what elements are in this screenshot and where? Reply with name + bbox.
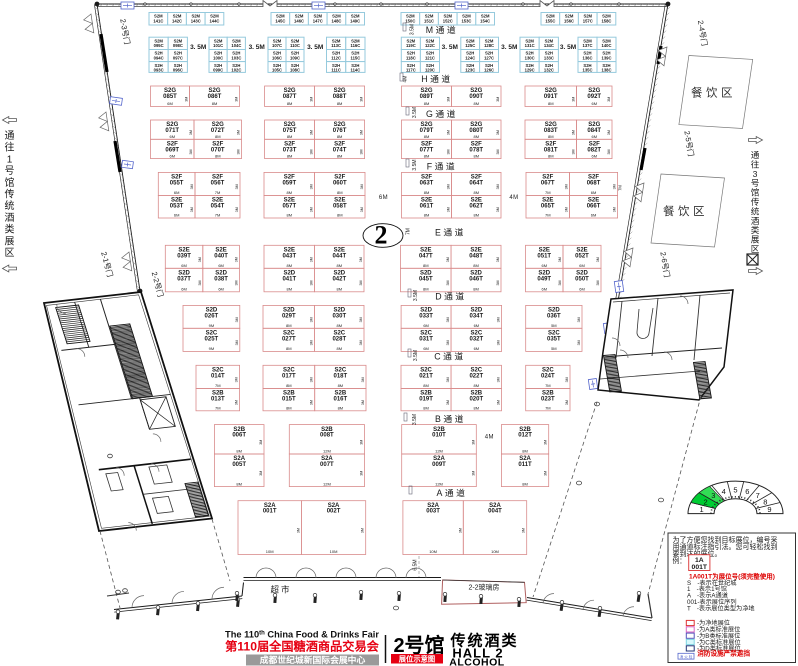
svg-text:10M: 10M bbox=[266, 549, 274, 554]
svg-text:3M: 3M bbox=[310, 317, 314, 322]
svg-text:143C: 143C bbox=[191, 18, 201, 23]
svg-text:6M: 6M bbox=[474, 323, 480, 328]
svg-text:067T: 067T bbox=[541, 180, 555, 186]
svg-text:3M: 3M bbox=[237, 149, 241, 154]
svg-text:8M: 8M bbox=[286, 383, 292, 388]
svg-text:3M: 3M bbox=[310, 207, 314, 212]
svg-text:014T: 014T bbox=[211, 373, 225, 379]
svg-text:6M: 6M bbox=[474, 346, 480, 351]
svg-text:006T: 006T bbox=[232, 433, 246, 439]
svg-text:8M: 8M bbox=[424, 101, 430, 106]
svg-text:8M: 8M bbox=[337, 190, 343, 195]
svg-text:3M: 3M bbox=[310, 184, 314, 189]
svg-text:3M: 3M bbox=[185, 97, 189, 102]
svg-text:3M: 3M bbox=[190, 207, 194, 212]
svg-text:8M: 8M bbox=[286, 346, 292, 351]
svg-text:3M: 3M bbox=[360, 184, 364, 189]
svg-text:3M: 3M bbox=[497, 400, 501, 405]
svg-text:088T: 088T bbox=[333, 94, 347, 100]
svg-text:6M: 6M bbox=[423, 323, 429, 328]
svg-text:8M: 8M bbox=[423, 287, 429, 292]
svg-text:092T: 092T bbox=[587, 94, 601, 100]
svg-text:029T: 029T bbox=[282, 313, 296, 319]
svg-text:3M: 3M bbox=[496, 257, 500, 262]
svg-text:1A: 1A bbox=[695, 557, 704, 564]
svg-text:餐饮区: 餐饮区 bbox=[691, 86, 736, 100]
svg-text:5M: 5M bbox=[551, 323, 557, 328]
svg-text:024T: 024T bbox=[541, 373, 555, 379]
svg-text:区: 区 bbox=[751, 244, 760, 254]
svg-text:093C: 093C bbox=[154, 67, 164, 72]
svg-text:3. 5M: 3. 5M bbox=[442, 44, 458, 51]
svg-text:3M: 3M bbox=[447, 184, 451, 189]
svg-text:134C: 134C bbox=[544, 43, 554, 48]
svg-text:12M: 12M bbox=[435, 449, 443, 454]
svg-text:145C: 145C bbox=[275, 18, 285, 23]
svg-text:3M: 3M bbox=[522, 528, 526, 533]
svg-text:3M: 3M bbox=[497, 377, 501, 382]
svg-text:6M: 6M bbox=[591, 101, 597, 106]
svg-text:5M: 5M bbox=[551, 346, 557, 351]
svg-text:3.5M: 3.5M bbox=[412, 414, 418, 425]
svg-text:3M: 3M bbox=[310, 281, 314, 286]
svg-text:013T: 013T bbox=[211, 397, 225, 403]
svg-text:3M: 3M bbox=[447, 97, 451, 102]
svg-text:3M: 3M bbox=[237, 130, 241, 135]
svg-text:3M: 3M bbox=[471, 440, 475, 445]
svg-text:137C: 137C bbox=[582, 43, 592, 48]
svg-text:051T: 051T bbox=[537, 253, 551, 259]
svg-text:7M: 7M bbox=[618, 185, 623, 191]
svg-text:6M: 6M bbox=[181, 263, 187, 268]
svg-text:8M: 8M bbox=[548, 101, 554, 106]
svg-text:7M: 7M bbox=[545, 406, 551, 411]
svg-text:8M: 8M bbox=[424, 134, 430, 139]
svg-text:8M: 8M bbox=[474, 406, 480, 411]
svg-text:为了方便您找到目标展位，编号采: 为了方便您找到目标展位，编号采 bbox=[673, 535, 778, 544]
svg-text:140C: 140C bbox=[601, 43, 611, 48]
svg-text:成都世纪城新国际会展中心: 成都世纪城新国际会展中心 bbox=[260, 654, 366, 665]
svg-text:3. 5M: 3. 5M bbox=[307, 44, 323, 51]
svg-text:042T: 042T bbox=[332, 276, 346, 282]
svg-text:3M: 3M bbox=[544, 440, 548, 445]
svg-text:020T: 020T bbox=[469, 397, 483, 403]
svg-text:3M: 3M bbox=[360, 97, 364, 102]
svg-text:001T: 001T bbox=[692, 564, 708, 571]
svg-text:统: 统 bbox=[751, 205, 760, 216]
svg-text:2: 2 bbox=[704, 497, 708, 506]
svg-text:8M: 8M bbox=[287, 153, 293, 158]
svg-text:6M: 6M bbox=[167, 101, 173, 106]
svg-text:3M: 3M bbox=[558, 281, 562, 286]
svg-text:3M: 3M bbox=[607, 130, 611, 135]
svg-text:8M: 8M bbox=[423, 383, 429, 388]
svg-text:8M: 8M bbox=[337, 346, 343, 351]
svg-text:3M: 3M bbox=[565, 377, 569, 382]
svg-text:统: 统 bbox=[5, 199, 15, 212]
svg-text:3M: 3M bbox=[572, 97, 576, 102]
svg-text:3M: 3M bbox=[310, 377, 314, 382]
svg-text:152C: 152C bbox=[443, 18, 453, 23]
svg-text:032T: 032T bbox=[470, 336, 484, 342]
svg-text:3M: 3M bbox=[496, 184, 500, 189]
svg-text:往: 往 bbox=[751, 158, 760, 169]
svg-text:6M: 6M bbox=[218, 287, 224, 292]
svg-text:馆: 馆 bbox=[751, 187, 760, 198]
svg-text:3M: 3M bbox=[190, 184, 194, 189]
svg-text:001T: 001T bbox=[263, 509, 277, 515]
svg-text:115C: 115C bbox=[350, 55, 360, 60]
svg-text:酒: 酒 bbox=[5, 212, 15, 224]
svg-text:105C: 105C bbox=[272, 67, 282, 72]
svg-text:056T: 056T bbox=[211, 180, 225, 186]
svg-text:131C: 131C bbox=[525, 43, 535, 48]
svg-text:8M: 8M bbox=[522, 449, 528, 454]
svg-text:149C: 149C bbox=[350, 18, 360, 23]
svg-text:3M: 3M bbox=[577, 317, 581, 322]
svg-text:6M: 6M bbox=[591, 190, 597, 195]
svg-text:3M: 3M bbox=[310, 130, 314, 135]
svg-text:101C: 101C bbox=[213, 43, 223, 48]
svg-text:106C: 106C bbox=[272, 55, 282, 60]
svg-text:8M: 8M bbox=[212, 101, 218, 106]
svg-text:3M: 3M bbox=[235, 317, 239, 322]
svg-text:3: 3 bbox=[711, 491, 715, 500]
svg-text:6.5M: 6.5M bbox=[413, 559, 419, 570]
svg-text:054T: 054T bbox=[211, 203, 225, 209]
svg-text:3M: 3M bbox=[446, 377, 450, 382]
svg-text:8M: 8M bbox=[287, 213, 293, 218]
svg-text:3M: 3M bbox=[446, 257, 450, 262]
svg-text:传: 传 bbox=[5, 189, 15, 201]
svg-text:类: 类 bbox=[5, 223, 15, 236]
svg-text:8M: 8M bbox=[337, 263, 343, 268]
svg-text:3M: 3M bbox=[198, 281, 202, 286]
svg-text:3M: 3M bbox=[596, 281, 600, 286]
svg-text:155C: 155C bbox=[545, 18, 555, 23]
svg-text:3M: 3M bbox=[446, 281, 450, 286]
svg-text:117C: 117C bbox=[406, 67, 416, 72]
svg-text:12M: 12M bbox=[323, 481, 331, 486]
svg-text:9M: 9M bbox=[209, 346, 215, 351]
svg-text:048T: 048T bbox=[469, 253, 483, 259]
svg-text:1: 1 bbox=[7, 154, 13, 165]
svg-text:6M: 6M bbox=[181, 287, 187, 292]
svg-text:H通道: H通道 bbox=[421, 73, 452, 84]
svg-text:8M: 8M bbox=[424, 213, 430, 218]
svg-text:传: 传 bbox=[751, 196, 760, 207]
svg-text:064T: 064T bbox=[469, 180, 483, 186]
svg-text:107C: 107C bbox=[272, 43, 282, 48]
svg-text:025T: 025T bbox=[205, 336, 219, 342]
svg-text:8M: 8M bbox=[522, 481, 528, 486]
svg-text:6M: 6M bbox=[591, 153, 597, 158]
svg-text:059T: 059T bbox=[282, 180, 296, 186]
svg-text:3M: 3M bbox=[496, 207, 500, 212]
svg-text:8M: 8M bbox=[474, 383, 480, 388]
svg-text:057T: 057T bbox=[282, 203, 296, 209]
svg-text:097C: 097C bbox=[173, 55, 183, 60]
svg-text:7M: 7M bbox=[215, 383, 221, 388]
svg-text:展位示意图: 展位示意图 bbox=[398, 655, 435, 664]
svg-text:125C: 125C bbox=[465, 43, 475, 48]
svg-text:022T: 022T bbox=[469, 373, 483, 379]
svg-text:B通道: B通道 bbox=[435, 413, 466, 424]
svg-text:062T: 062T bbox=[469, 203, 483, 209]
svg-text:124C: 124C bbox=[465, 55, 475, 60]
svg-text:3M: 3M bbox=[471, 471, 475, 476]
svg-text:8M: 8M bbox=[337, 287, 343, 292]
svg-text:3M: 3M bbox=[446, 340, 450, 345]
svg-text:用通道标注指引法。您可轻松找到: 用通道标注指引法。您可轻松找到 bbox=[673, 542, 778, 551]
svg-text:10M: 10M bbox=[491, 549, 499, 554]
svg-text:3M: 3M bbox=[189, 149, 193, 154]
svg-text:119C: 119C bbox=[406, 43, 416, 48]
svg-text:5: 5 bbox=[733, 486, 737, 495]
svg-text:044T: 044T bbox=[332, 253, 346, 259]
svg-text:8M: 8M bbox=[473, 153, 479, 158]
svg-text:041T: 041T bbox=[282, 276, 296, 282]
svg-text:2: 2 bbox=[375, 221, 388, 250]
svg-text:8M: 8M bbox=[473, 190, 479, 195]
svg-text:100C: 100C bbox=[213, 55, 223, 60]
svg-text:4: 4 bbox=[722, 487, 726, 496]
svg-text:8M: 8M bbox=[473, 287, 479, 292]
svg-text:3M: 3M bbox=[235, 377, 239, 382]
svg-text:8M: 8M bbox=[424, 153, 430, 158]
svg-text:6M: 6M bbox=[541, 287, 547, 292]
svg-text:3M: 3M bbox=[565, 184, 569, 189]
svg-text:147C: 147C bbox=[313, 18, 323, 23]
svg-text:156C: 156C bbox=[564, 18, 574, 23]
svg-text:3. 5M: 3. 5M bbox=[560, 44, 576, 51]
svg-text:例：: 例： bbox=[673, 556, 687, 565]
svg-text:094C: 094C bbox=[154, 55, 164, 60]
svg-text:8M: 8M bbox=[423, 406, 429, 411]
svg-text:052T: 052T bbox=[575, 253, 589, 259]
svg-text:128C: 128C bbox=[484, 43, 494, 48]
svg-text:3M: 3M bbox=[565, 207, 569, 212]
svg-text:3M: 3M bbox=[496, 130, 500, 135]
svg-text:3M: 3M bbox=[572, 130, 576, 135]
svg-text:3M: 3M bbox=[259, 440, 263, 445]
svg-text:8M: 8M bbox=[473, 263, 479, 268]
svg-text:007T: 007T bbox=[320, 462, 334, 468]
svg-text:126C: 126C bbox=[484, 67, 494, 72]
svg-text:015T: 015T bbox=[282, 397, 296, 403]
svg-text:113C: 113C bbox=[331, 43, 341, 48]
svg-text:138C: 138C bbox=[601, 67, 611, 72]
svg-text:065T: 065T bbox=[541, 203, 555, 209]
svg-text:003T: 003T bbox=[426, 509, 440, 515]
svg-text:066T: 066T bbox=[587, 203, 601, 209]
svg-text:089T: 089T bbox=[420, 94, 434, 100]
svg-text:023T: 023T bbox=[541, 397, 555, 403]
svg-text:展: 展 bbox=[5, 235, 15, 247]
svg-text:8M: 8M bbox=[286, 406, 292, 411]
svg-text:3M: 3M bbox=[446, 317, 450, 322]
svg-text:037T: 037T bbox=[177, 276, 191, 282]
svg-text:6M: 6M bbox=[379, 195, 388, 201]
svg-text:3M: 3M bbox=[235, 340, 239, 345]
svg-text:130C: 130C bbox=[525, 55, 535, 60]
svg-text:103C: 103C bbox=[231, 55, 241, 60]
svg-text:122C: 122C bbox=[425, 43, 435, 48]
svg-text:098C: 098C bbox=[173, 43, 183, 48]
svg-text:8M: 8M bbox=[424, 190, 430, 195]
svg-text:超市: 超市 bbox=[270, 585, 291, 595]
svg-text:3M: 3M bbox=[296, 528, 300, 533]
svg-text:009T: 009T bbox=[432, 462, 446, 468]
svg-text:123C: 123C bbox=[465, 67, 475, 72]
svg-text:3M: 3M bbox=[360, 130, 364, 135]
svg-text:008T: 008T bbox=[320, 433, 334, 439]
svg-text:7M: 7M bbox=[215, 406, 221, 411]
svg-text:136C: 136C bbox=[582, 55, 592, 60]
svg-text:060T: 060T bbox=[333, 180, 347, 186]
svg-text:111C: 111C bbox=[331, 67, 341, 72]
svg-text:055T: 055T bbox=[170, 180, 184, 186]
svg-text:034T: 034T bbox=[470, 313, 484, 319]
svg-text:8M: 8M bbox=[236, 449, 242, 454]
svg-text:E通道: E通道 bbox=[435, 227, 466, 238]
svg-text:3M: 3M bbox=[360, 207, 364, 212]
svg-text:7M: 7M bbox=[545, 383, 551, 388]
svg-text:G通道: G通道 bbox=[426, 108, 458, 119]
svg-text:6: 6 bbox=[745, 487, 749, 496]
svg-text:M通道: M通道 bbox=[426, 24, 458, 35]
svg-text:通: 通 bbox=[5, 130, 15, 142]
svg-text:6M: 6M bbox=[579, 263, 585, 268]
svg-text:026T: 026T bbox=[205, 313, 219, 319]
svg-text:002T: 002T bbox=[327, 509, 341, 515]
svg-text:3M: 3M bbox=[310, 400, 314, 405]
svg-text:061T: 061T bbox=[420, 203, 434, 209]
svg-text:1: 1 bbox=[699, 505, 703, 514]
svg-text:033T: 033T bbox=[419, 313, 433, 319]
svg-text:ALCOHOL: ALCOHOL bbox=[449, 657, 504, 666]
svg-text:3M: 3M bbox=[497, 340, 501, 345]
svg-text:096C: 096C bbox=[173, 67, 183, 72]
svg-text:8M: 8M bbox=[215, 153, 221, 158]
svg-text:102C: 102C bbox=[231, 67, 241, 72]
svg-text:120C: 120C bbox=[425, 67, 435, 72]
svg-text:3M: 3M bbox=[360, 440, 364, 445]
svg-text:6M: 6M bbox=[423, 346, 429, 351]
svg-text:043T: 043T bbox=[282, 253, 296, 259]
svg-text:7: 7 bbox=[756, 491, 760, 500]
svg-text:039T: 039T bbox=[177, 253, 191, 259]
svg-text:T -表示展位类型为净地: T -表示展位类型为净地 bbox=[687, 604, 755, 612]
svg-text:030T: 030T bbox=[332, 313, 346, 319]
svg-text:3M: 3M bbox=[359, 281, 363, 286]
svg-text:3M: 3M bbox=[496, 149, 500, 154]
svg-text:058T: 058T bbox=[333, 203, 347, 209]
svg-text:3.5M: 3.5M bbox=[412, 159, 418, 170]
svg-text:A通道: A通道 bbox=[437, 487, 468, 498]
svg-text:8M: 8M bbox=[337, 134, 343, 139]
svg-text:158C: 158C bbox=[601, 18, 611, 23]
svg-text:3M: 3M bbox=[496, 97, 500, 102]
svg-text:3. 5M: 3. 5M bbox=[190, 44, 206, 51]
svg-text:3.5M: 3.5M bbox=[413, 350, 419, 361]
svg-text:3M: 3M bbox=[596, 257, 600, 262]
svg-text:8M: 8M bbox=[423, 263, 429, 268]
svg-text:3M: 3M bbox=[198, 257, 202, 262]
svg-text:7M: 7M bbox=[215, 190, 221, 195]
svg-text:027T: 027T bbox=[282, 336, 296, 342]
svg-text:068T: 068T bbox=[587, 180, 601, 186]
svg-text:6M: 6M bbox=[174, 213, 180, 218]
svg-text:153C: 153C bbox=[461, 18, 471, 23]
svg-text:141C: 141C bbox=[153, 18, 163, 23]
svg-text:038T: 038T bbox=[214, 276, 228, 282]
svg-text:3M: 3M bbox=[572, 149, 576, 154]
svg-text:3.5M: 3.5M bbox=[410, 24, 416, 35]
svg-text:8M: 8M bbox=[548, 134, 554, 139]
svg-text:3. 5M: 3. 5M bbox=[249, 44, 265, 51]
svg-text:10M: 10M bbox=[330, 549, 338, 554]
svg-text:2号馆: 2号馆 bbox=[393, 633, 444, 657]
svg-text:151C: 151C bbox=[424, 18, 434, 23]
svg-text:6M: 6M bbox=[591, 213, 597, 218]
svg-text:150C: 150C bbox=[405, 18, 415, 23]
svg-text:031T: 031T bbox=[419, 336, 433, 342]
svg-text:095C: 095C bbox=[154, 43, 164, 48]
svg-text:116C: 116C bbox=[350, 43, 360, 48]
svg-text:3M: 3M bbox=[310, 97, 314, 102]
svg-text:086T: 086T bbox=[208, 94, 222, 100]
svg-text:9: 9 bbox=[767, 505, 771, 514]
svg-text:3M: 3M bbox=[360, 149, 364, 154]
svg-text:3M: 3M bbox=[447, 130, 451, 135]
svg-text:8M: 8M bbox=[215, 134, 221, 139]
svg-text:8M: 8M bbox=[236, 481, 242, 486]
svg-text:157C: 157C bbox=[583, 18, 593, 23]
svg-text:往: 往 bbox=[5, 141, 15, 154]
svg-text:The 110th China Food & Drinks: The 110th China Food & Drinks Fair bbox=[225, 630, 379, 640]
svg-text:3M: 3M bbox=[613, 207, 617, 212]
svg-text:139C: 139C bbox=[601, 55, 611, 60]
svg-text:148C: 148C bbox=[331, 18, 341, 23]
svg-text:121C: 121C bbox=[425, 55, 435, 60]
svg-text:8M: 8M bbox=[286, 323, 292, 328]
svg-text:3M: 3M bbox=[359, 317, 363, 322]
svg-text:3M: 3M bbox=[497, 317, 501, 322]
svg-text:号: 号 bbox=[5, 165, 15, 177]
svg-text:040T: 040T bbox=[214, 253, 228, 259]
svg-text:类: 类 bbox=[751, 224, 760, 235]
svg-text:114C: 114C bbox=[350, 67, 360, 72]
svg-text:4M: 4M bbox=[509, 195, 518, 201]
svg-text:3M: 3M bbox=[235, 400, 239, 405]
svg-text:9M: 9M bbox=[209, 323, 215, 328]
svg-text:6M: 6M bbox=[174, 190, 180, 195]
svg-text:7M: 7M bbox=[545, 213, 551, 218]
svg-text:018T: 018T bbox=[334, 373, 348, 379]
svg-text:3M: 3M bbox=[359, 257, 363, 262]
svg-text:087T: 087T bbox=[283, 94, 297, 100]
svg-text:133C: 133C bbox=[544, 55, 554, 60]
svg-text:8M: 8M bbox=[337, 153, 343, 158]
svg-text:3.5M: 3.5M bbox=[413, 290, 419, 301]
svg-text:045T: 045T bbox=[419, 276, 433, 282]
svg-text:8M: 8M bbox=[338, 406, 344, 411]
svg-text:4M: 4M bbox=[485, 435, 494, 441]
svg-text:3M: 3M bbox=[544, 471, 548, 476]
svg-text:3.5M: 3.5M bbox=[412, 107, 418, 118]
svg-text:3M: 3M bbox=[310, 149, 314, 154]
